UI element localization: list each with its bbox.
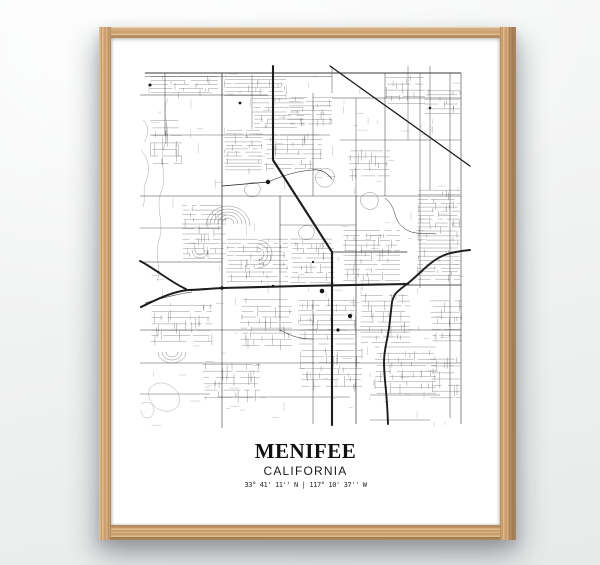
frame-top-rail <box>99 27 516 38</box>
intersection-knots <box>149 84 432 332</box>
poster-title-block: MENIFEE CALIFORNIA 33° 41' 11'' N | 117°… <box>111 440 500 489</box>
frame-left-rail <box>99 27 111 540</box>
poster-subtitle: CALIFORNIA <box>111 464 500 478</box>
pond-outlines <box>244 168 378 239</box>
frame-right-rail <box>500 27 516 540</box>
frame-bottom-rail <box>99 525 516 540</box>
poster-title: MENIFEE <box>111 440 500 462</box>
poster-coordinates: 33° 41' 11'' N | 117° 10' 37'' W <box>111 481 500 489</box>
contour-lines <box>141 98 180 418</box>
minor-streets <box>148 75 462 403</box>
picture-frame: MENIFEE CALIFORNIA 33° 41' 11'' N | 117°… <box>99 27 516 540</box>
wall: MENIFEE CALIFORNIA 33° 41' 11'' N | 117°… <box>0 0 600 565</box>
map-poster: MENIFEE CALIFORNIA 33° 41' 11'' N | 117°… <box>111 38 500 525</box>
west-branch-road <box>140 261 186 289</box>
